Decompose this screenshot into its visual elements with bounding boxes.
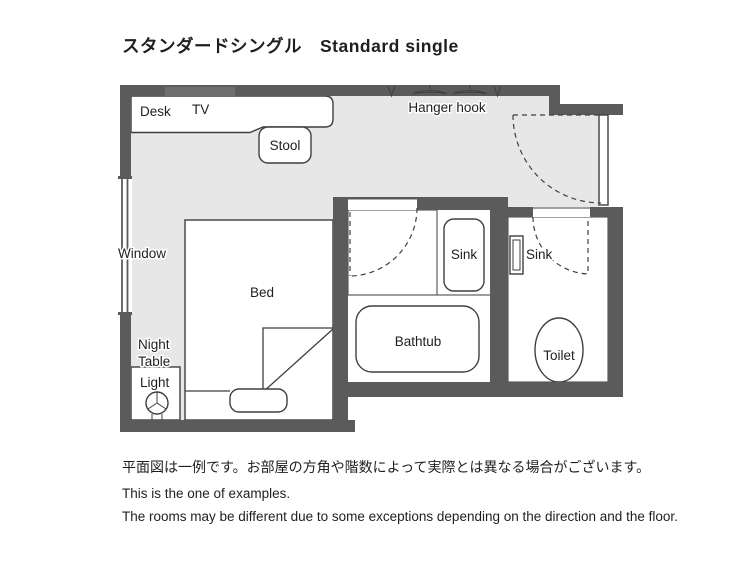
bathroom-tile-floor <box>348 210 437 295</box>
light-label: Light <box>140 375 170 390</box>
page: スタンダードシングル Standard single <box>0 0 750 563</box>
window-label: Window <box>118 246 166 261</box>
toilet-sink <box>510 236 523 274</box>
night-table-label-line1: Night <box>138 337 170 352</box>
footer-notes: 平面図は一例です。お部屋の方角や階数によって実際とは異なる場合がございます。 T… <box>122 457 678 524</box>
bathtub-label: Bathtub <box>395 334 442 349</box>
bathroom-door-swing <box>349 208 417 276</box>
footer-note-en1: This is the one of examples. <box>122 486 678 501</box>
toilet-sink-label: Sink <box>526 247 553 262</box>
night-table-label-line2: Table <box>138 354 170 369</box>
toilet-label: Toilet <box>543 348 575 363</box>
stool-label: Stool <box>270 138 301 153</box>
desk-label: Desk <box>140 104 171 119</box>
footer-note-en2: The rooms may be different due to some e… <box>122 509 678 524</box>
tv-unit <box>165 87 235 96</box>
bathroom-sink-label: Sink <box>451 247 478 262</box>
bathroom-door-opening <box>348 200 417 211</box>
toilet-door-swing <box>533 217 590 274</box>
footer-note-jp: 平面図は一例です。お部屋の方角や階数によって実際とは異なる場合がございます。 <box>122 457 678 477</box>
pillow <box>230 389 287 412</box>
bed-label: Bed <box>250 285 274 300</box>
hanger-hook-label: Hanger hook <box>408 100 486 115</box>
tv-label: TV <box>192 102 209 117</box>
